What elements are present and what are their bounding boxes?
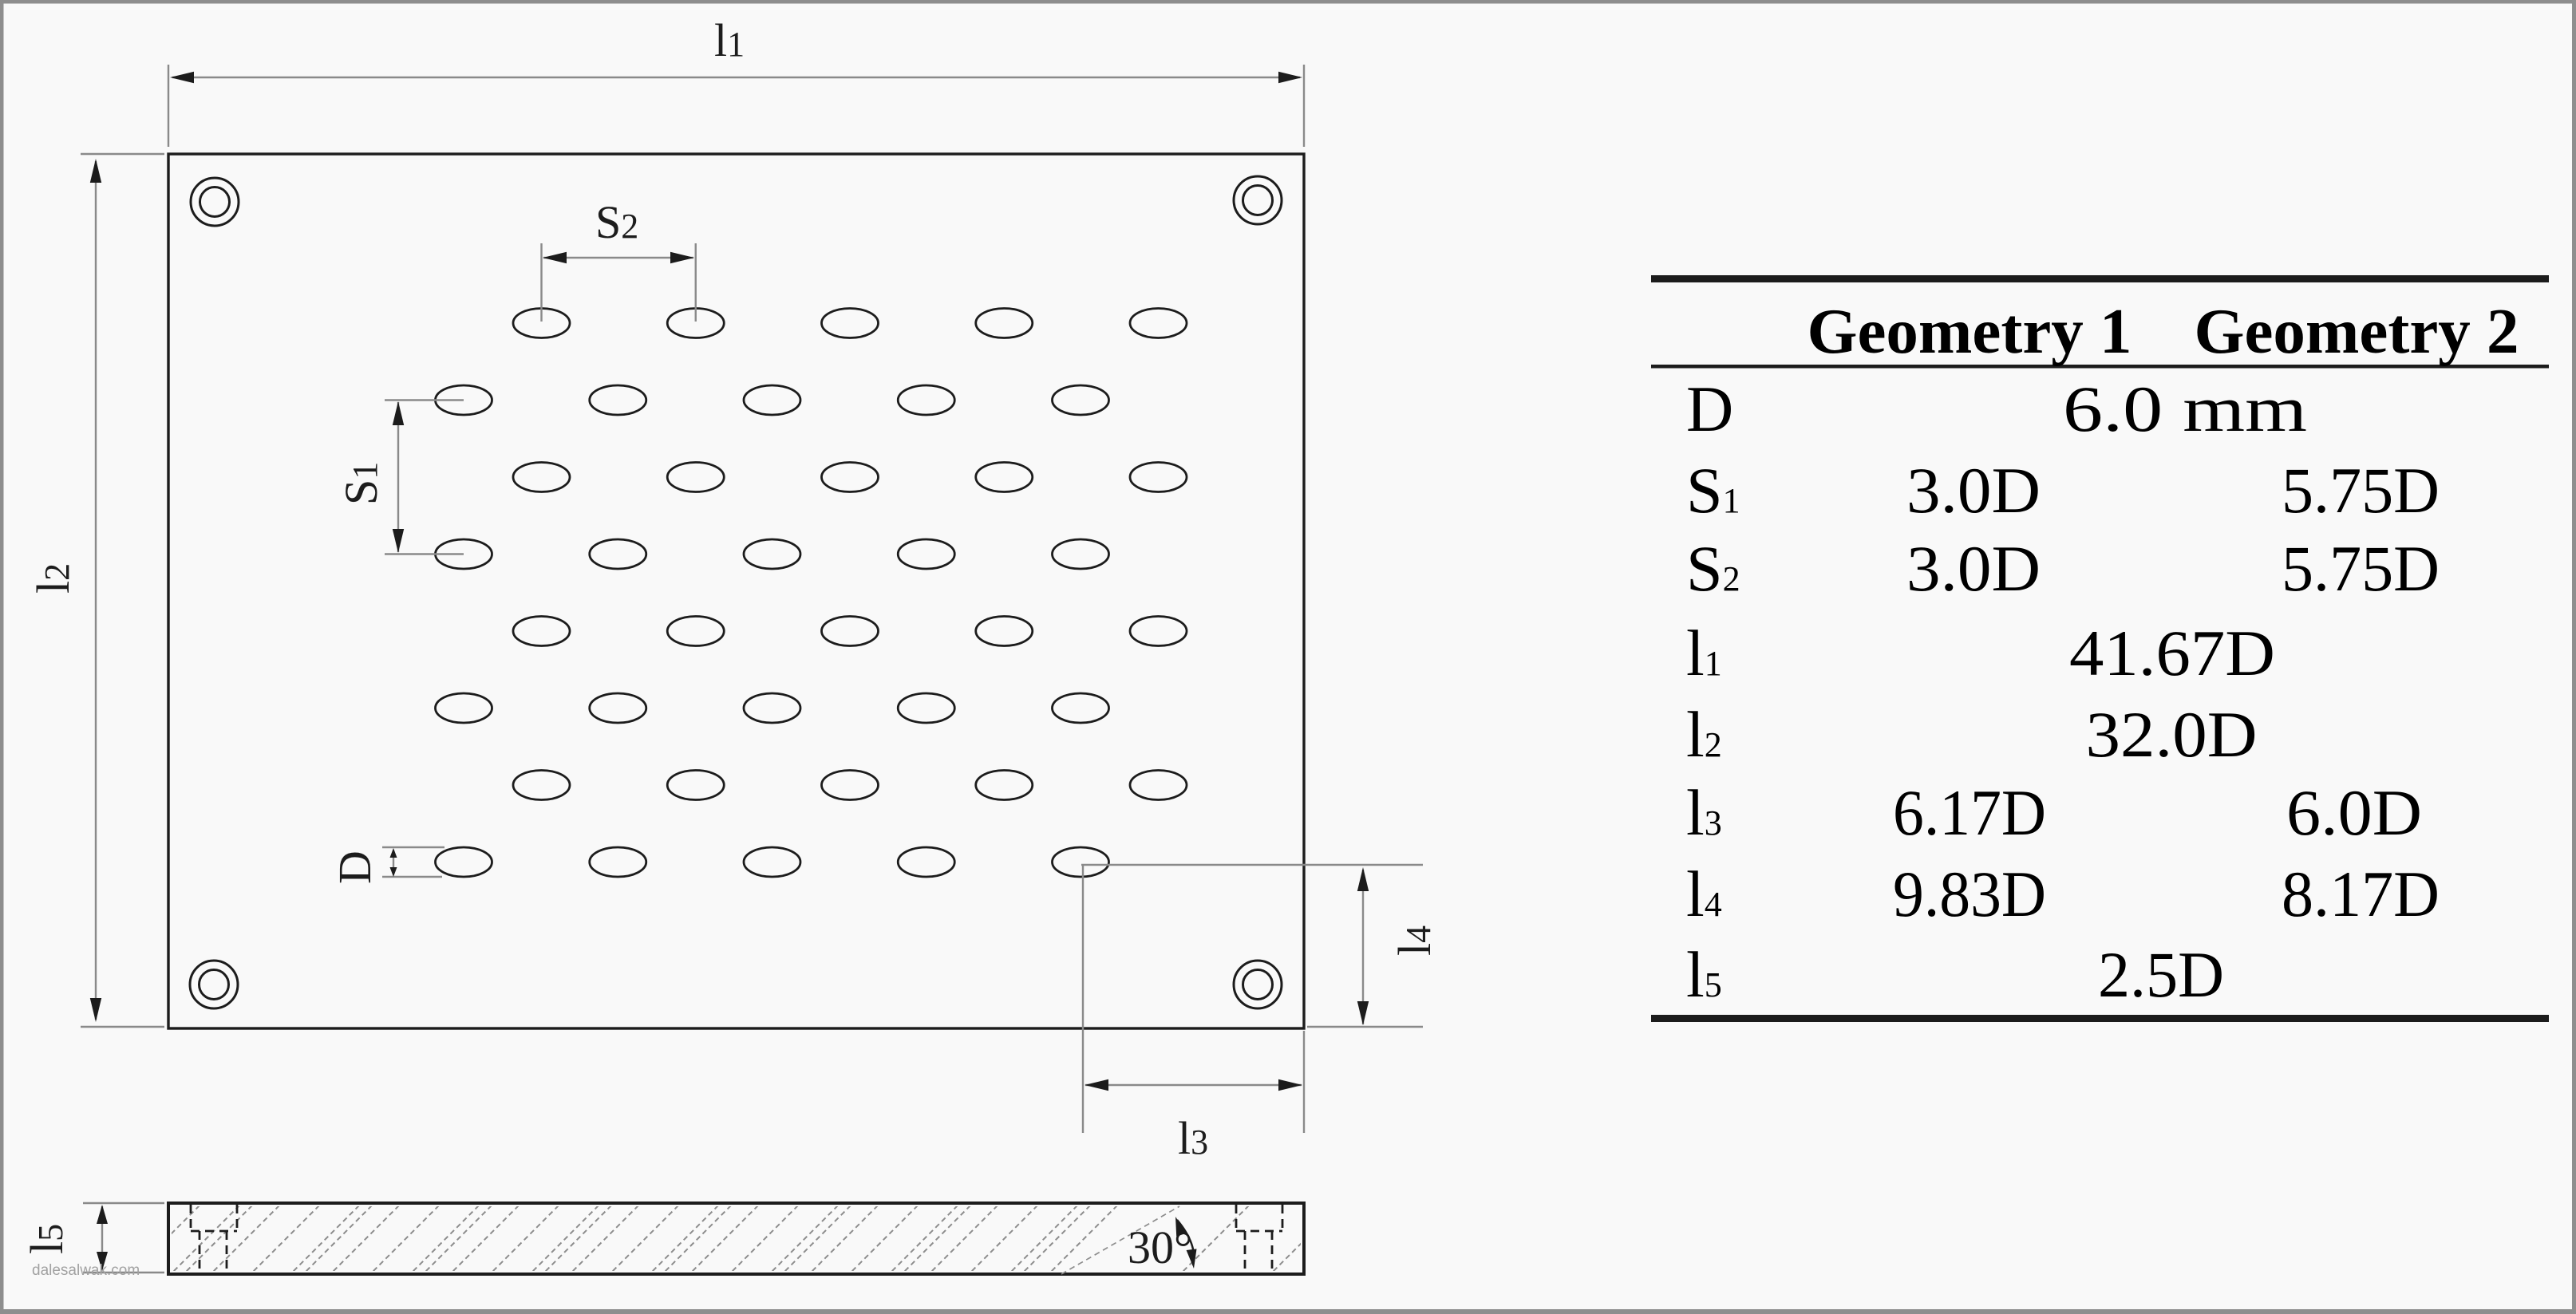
svg-text:30°: 30° bbox=[1128, 1221, 1192, 1273]
svg-text:6.17D: 6.17D bbox=[1893, 776, 2046, 849]
svg-text:9.83D: 9.83D bbox=[1893, 858, 2046, 930]
svg-text:3.0D: 3.0D bbox=[1906, 454, 2041, 527]
svg-text:D: D bbox=[1686, 373, 1733, 445]
svg-text:6.0D: 6.0D bbox=[2286, 776, 2422, 849]
svg-text:Geometry 2: Geometry 2 bbox=[2194, 295, 2519, 367]
svg-text:D: D bbox=[329, 850, 381, 884]
svg-text:32.0D: 32.0D bbox=[2086, 698, 2258, 771]
svg-text:3.0D: 3.0D bbox=[1906, 532, 2041, 605]
svg-text:8.17D: 8.17D bbox=[2282, 858, 2440, 930]
svg-text:2.5D: 2.5D bbox=[2098, 938, 2224, 1011]
svg-text:6.0 mm: 6.0 mm bbox=[2063, 373, 2307, 445]
svg-text:5.75D: 5.75D bbox=[2282, 454, 2440, 527]
svg-text:41.67D: 41.67D bbox=[2069, 617, 2275, 689]
svg-text:Geometry 1: Geometry 1 bbox=[1807, 295, 2132, 367]
svg-text:dalesalwak.com: dalesalwak.com bbox=[32, 1262, 140, 1279]
svg-text:5.75D: 5.75D bbox=[2282, 532, 2440, 605]
